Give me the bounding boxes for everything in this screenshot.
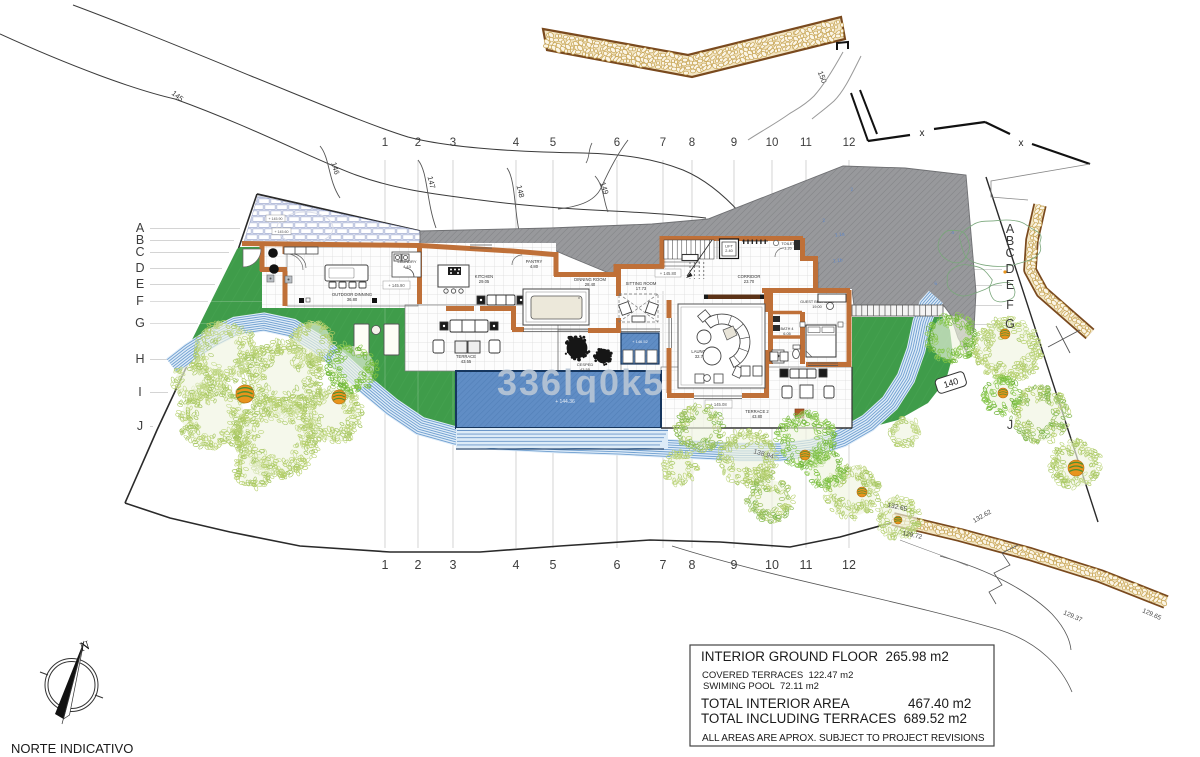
svg-text:6: 6 xyxy=(614,137,620,149)
svg-text:TOTAL INTERIOR AREA: TOTAL INTERIOR AREA xyxy=(701,696,850,711)
svg-text:10: 10 xyxy=(765,558,779,572)
svg-text:COVERED TERRACES 122.47 m2: COVERED TERRACES 122.47 m2 xyxy=(702,670,853,681)
svg-text:F: F xyxy=(1006,298,1014,312)
svg-text:3.20: 3.20 xyxy=(784,247,791,251)
svg-text:11: 11 xyxy=(800,558,813,572)
svg-text:1: 1 xyxy=(382,137,388,149)
svg-text:G: G xyxy=(1005,317,1015,331)
svg-text:E: E xyxy=(136,277,144,291)
svg-text:TOILET: TOILET xyxy=(781,242,795,246)
svg-text:467.40 m2: 467.40 m2 xyxy=(908,696,971,711)
svg-text:F: F xyxy=(136,294,144,308)
svg-text:9: 9 xyxy=(731,137,737,149)
svg-text:INTERIOR GROUND FLOOR 265.98: INTERIOR GROUND FLOOR 265.98 m2 xyxy=(701,649,949,664)
svg-text:H: H xyxy=(135,352,144,366)
svg-text:43.55: 43.55 xyxy=(461,359,472,364)
svg-text:+ 145.08: + 145.08 xyxy=(710,402,727,407)
svg-text:BATH 4: BATH 4 xyxy=(780,327,793,331)
svg-text:2.40: 2.40 xyxy=(725,249,732,253)
svg-text:29.05: 29.05 xyxy=(479,279,490,284)
svg-text:36.80: 36.80 xyxy=(347,297,358,302)
svg-text:4.43: 4.43 xyxy=(403,264,412,269)
svg-text:17.73: 17.73 xyxy=(636,286,647,291)
svg-text:D: D xyxy=(1005,262,1014,276)
svg-text:4.80: 4.80 xyxy=(530,264,539,269)
svg-text:SWIMING POOL 72.11 m2: SWIMING POOL 72.11 m2 xyxy=(703,681,819,692)
svg-text:J: J xyxy=(137,419,143,433)
svg-text:8: 8 xyxy=(689,137,695,149)
svg-text:7: 7 xyxy=(660,558,667,572)
svg-text:9: 9 xyxy=(731,558,738,572)
svg-text:2: 2 xyxy=(415,137,421,149)
svg-text:336lq0k5: 336lq0k5 xyxy=(497,362,665,403)
svg-text:2: 2 xyxy=(415,558,422,572)
svg-text:D: D xyxy=(135,261,144,275)
svg-text:x: x xyxy=(920,128,925,139)
svg-text:23.70: 23.70 xyxy=(744,279,755,284)
svg-text:I: I xyxy=(138,385,141,399)
svg-text:28.40: 28.40 xyxy=(585,282,596,287)
svg-text:ALL AREAS ARE APROX. SUBJECT T: ALL AREAS ARE APROX. SUBJECT TO PROJECT … xyxy=(702,733,985,744)
svg-text:C: C xyxy=(135,245,144,259)
svg-text:NORTE INDICATIVO: NORTE INDICATIVO xyxy=(11,741,133,756)
svg-text:11: 11 xyxy=(800,137,812,149)
svg-text:G: G xyxy=(135,316,145,330)
svg-text:12: 12 xyxy=(843,137,856,149)
svg-text:19.00: 19.00 xyxy=(812,305,822,309)
svg-text:TOTAL INCLUDING TERRACES 689.: TOTAL INCLUDING TERRACES 689.52 m2 xyxy=(701,711,967,726)
svg-text:12: 12 xyxy=(842,558,856,572)
svg-text:+ 145.80: + 145.80 xyxy=(660,271,677,276)
svg-text:1: 1 xyxy=(382,558,389,572)
svg-text:C: C xyxy=(1005,246,1014,260)
svg-text:LIFT: LIFT xyxy=(725,245,733,249)
svg-text:6.05: 6.05 xyxy=(783,332,790,336)
svg-text:5: 5 xyxy=(550,137,556,149)
svg-text:+ 145.90: + 145.90 xyxy=(268,217,282,221)
svg-text:+ 145.90: + 145.90 xyxy=(388,283,405,288)
svg-text:5: 5 xyxy=(550,558,557,572)
svg-text:E: E xyxy=(1006,278,1014,292)
svg-text:7: 7 xyxy=(660,137,666,149)
svg-text:6: 6 xyxy=(614,558,621,572)
svg-text:x: x xyxy=(1019,138,1024,149)
svg-text:+ 145.60: + 145.60 xyxy=(274,230,288,234)
svg-text:10: 10 xyxy=(766,137,779,149)
svg-text:J: J xyxy=(1007,418,1013,432)
svg-text:+ 146.52: + 146.52 xyxy=(632,339,648,344)
svg-text:4: 4 xyxy=(513,558,520,572)
svg-text:8: 8 xyxy=(689,558,696,572)
svg-text:4: 4 xyxy=(513,137,520,149)
svg-text:43.80: 43.80 xyxy=(752,414,763,419)
svg-text:3: 3 xyxy=(450,558,457,572)
svg-text:3: 3 xyxy=(450,137,456,149)
